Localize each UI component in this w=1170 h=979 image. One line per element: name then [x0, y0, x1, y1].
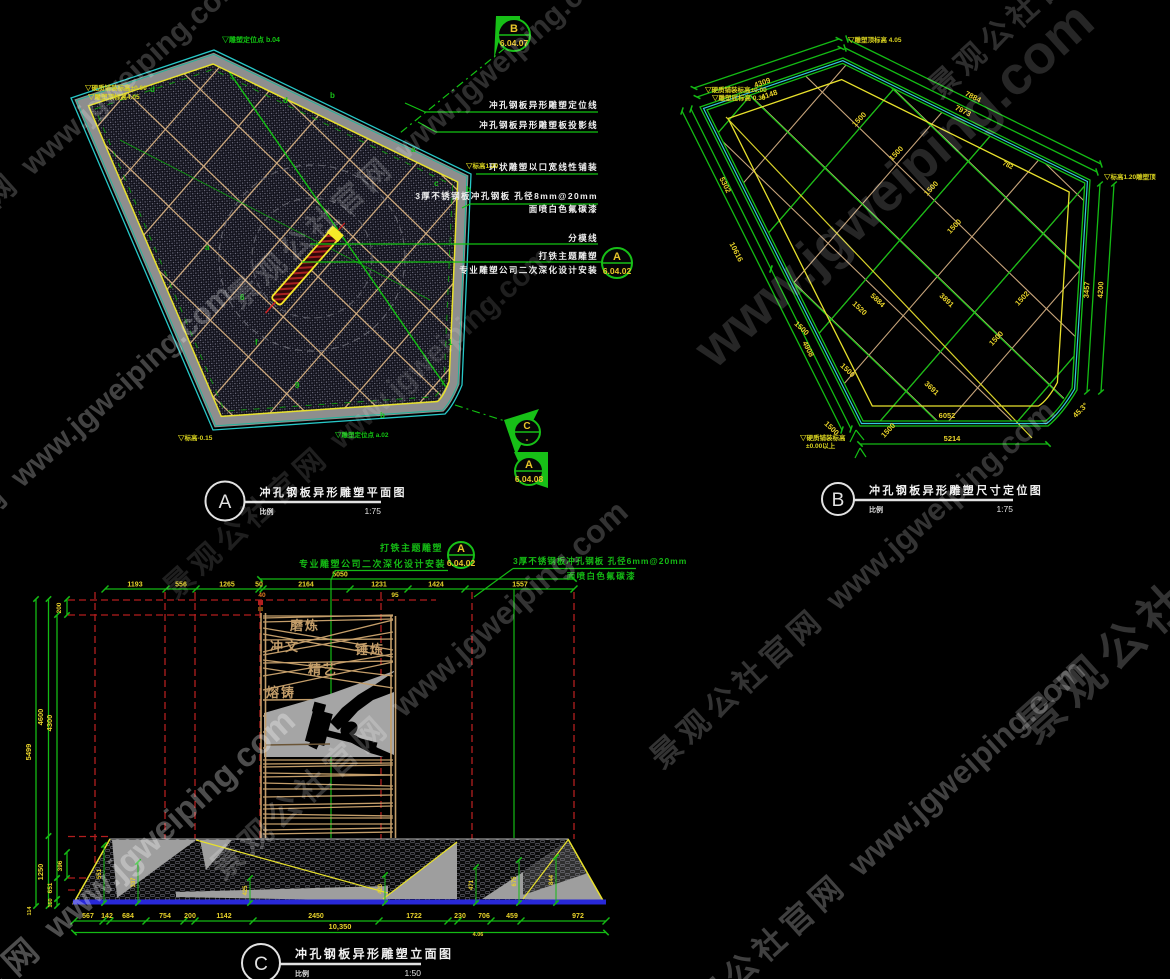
svg-text:环状雕塑以口宽线性铺装: 环状雕塑以口宽线性铺装 — [489, 162, 598, 172]
svg-text:1193: 1193 — [127, 582, 142, 589]
svg-text:冲文: 冲文 — [270, 639, 300, 654]
svg-text:6.04.02: 6.04.02 — [603, 266, 632, 276]
svg-text:459: 459 — [506, 913, 518, 920]
svg-text:5214: 5214 — [944, 434, 962, 443]
svg-text:844: 844 — [549, 874, 555, 885]
svg-text:▽标高1.20: ▽标高1.20 — [465, 161, 499, 170]
svg-text:b: b — [466, 185, 471, 194]
svg-text:A: A — [219, 492, 232, 513]
svg-text:1722: 1722 — [406, 913, 422, 920]
svg-text:A: A — [613, 251, 621, 263]
svg-text:675: 675 — [512, 876, 518, 887]
svg-text:6052: 6052 — [939, 411, 956, 420]
svg-text:706: 706 — [478, 913, 490, 920]
svg-text:3厚不锈钢板冲孔钢板 孔径8mm@20mm: 3厚不锈钢板冲孔钢板 孔径8mm@20mm — [415, 191, 598, 201]
svg-text:4200: 4200 — [1096, 281, 1106, 298]
svg-text:396: 396 — [57, 860, 64, 871]
svg-text:▽硬质铺装标高±0.00: ▽硬质铺装标高±0.00 — [704, 85, 767, 94]
svg-text:972: 972 — [572, 913, 584, 920]
svg-text:1265: 1265 — [219, 582, 235, 589]
svg-text:▽雕塑底标高 0.30: ▽雕塑底标高 0.30 — [711, 93, 766, 102]
svg-text:a: a — [205, 243, 210, 252]
svg-text:A: A — [525, 459, 533, 471]
svg-text:6.04.08: 6.04.08 — [515, 474, 544, 484]
svg-text:3457: 3457 — [1082, 281, 1092, 298]
svg-text:651: 651 — [47, 882, 54, 893]
svg-text:▽硬质铺装标高: ▽硬质铺装标高 — [799, 433, 846, 442]
svg-text:4300: 4300 — [45, 715, 54, 732]
svg-text:1231: 1231 — [371, 582, 387, 589]
svg-text:-: - — [526, 435, 529, 444]
svg-text:▽标高-0.15: ▽标高-0.15 — [177, 433, 213, 442]
svg-text:425: 425 — [243, 885, 249, 896]
svg-text:4600: 4600 — [36, 709, 45, 726]
svg-text:C: C — [254, 954, 268, 975]
svg-text:▽标高1.20雕塑顶: ▽标高1.20雕塑顶 — [1103, 172, 1156, 181]
svg-text:d: d — [150, 85, 155, 94]
svg-text:1:75: 1:75 — [996, 504, 1013, 514]
svg-text:6.04.02: 6.04.02 — [447, 558, 476, 568]
svg-text:熔铸: 熔铸 — [266, 685, 296, 700]
svg-text:精艺: 精艺 — [308, 662, 338, 677]
svg-text:1142: 1142 — [216, 913, 231, 920]
svg-text:面喷白色氟碳漆: 面喷白色氟碳漆 — [567, 571, 636, 581]
svg-text:比例: 比例 — [295, 969, 309, 978]
svg-text:471: 471 — [469, 879, 475, 890]
svg-text:200: 200 — [184, 913, 196, 920]
svg-text:5499: 5499 — [24, 744, 33, 761]
svg-text:b: b — [330, 91, 335, 100]
svg-text:±0.00以上: ±0.00以上 — [806, 441, 836, 450]
svg-text:面喷白色氟碳漆: 面喷白色氟碳漆 — [529, 204, 598, 214]
svg-text:磨炼: 磨炼 — [290, 618, 320, 633]
svg-text:c: c — [434, 179, 439, 188]
svg-text:B: B — [832, 490, 845, 511]
svg-text:1:50: 1:50 — [404, 968, 421, 978]
svg-text:114: 114 — [27, 906, 33, 916]
svg-text:142: 142 — [101, 913, 113, 920]
svg-text:10,350: 10,350 — [329, 922, 352, 931]
svg-text:1:75: 1:75 — [364, 506, 381, 516]
svg-text:1424: 1424 — [428, 582, 444, 589]
svg-text:专业雕塑公司二次深化设计安装: 专业雕塑公司二次深化设计安装 — [299, 558, 446, 569]
svg-text:▽雕塑定位点 b.04: ▽雕塑定位点 b.04 — [221, 35, 280, 44]
svg-text:9: 9 — [295, 381, 300, 390]
svg-text:1250: 1250 — [36, 864, 45, 881]
svg-text:684: 684 — [122, 913, 134, 920]
svg-text:2164: 2164 — [298, 582, 314, 589]
svg-text:200: 200 — [56, 602, 63, 613]
svg-text:230: 230 — [454, 913, 466, 920]
svg-text:冲孔钢板异形雕塑定位线: 冲孔钢板异形雕塑定位线 — [489, 100, 598, 110]
svg-text:50: 50 — [255, 582, 263, 589]
svg-text:分模线: 分模线 — [568, 233, 598, 243]
svg-text:d: d — [283, 96, 288, 105]
svg-text:冲孔钢板异形雕塑板投影线: 冲孔钢板异形雕塑板投影线 — [479, 120, 598, 130]
svg-text:2450: 2450 — [308, 913, 324, 920]
svg-text:4.06: 4.06 — [473, 932, 484, 938]
svg-text:比例: 比例 — [869, 505, 883, 514]
svg-text:40: 40 — [258, 592, 266, 599]
svg-text:420: 420 — [378, 883, 384, 894]
svg-text:95: 95 — [391, 592, 399, 599]
svg-text:锤炼: 锤炼 — [354, 642, 385, 657]
svg-text:冲孔钢板异形雕塑立面图: 冲孔钢板异形雕塑立面图 — [295, 946, 453, 961]
svg-text:▽雕塑顶标高 4.05: ▽雕塑顶标高 4.05 — [847, 35, 902, 44]
svg-text:A: A — [457, 543, 465, 555]
svg-text:754: 754 — [159, 913, 171, 920]
svg-text:打铁主题雕塑: 打铁主题雕塑 — [380, 542, 443, 553]
svg-text:C: C — [523, 421, 530, 432]
svg-text:f: f — [255, 338, 258, 347]
